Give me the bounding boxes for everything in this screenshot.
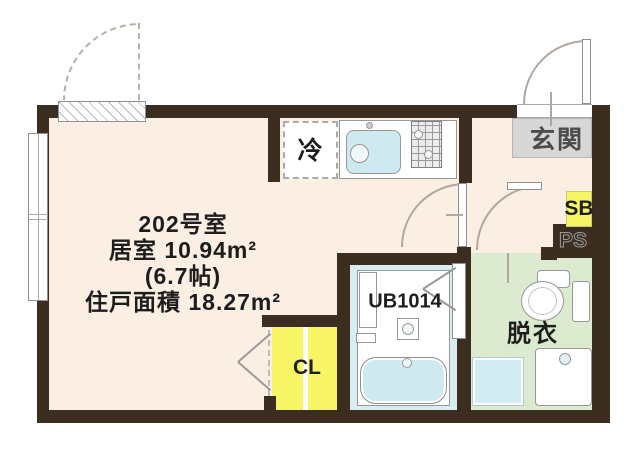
tatami-size: (6.7帖): [85, 263, 281, 289]
front-door-arc: [523, 40, 587, 104]
window-leaf-dashed: [138, 23, 140, 100]
wall-right: [592, 105, 610, 423]
top-window: [58, 101, 146, 122]
floor-plan: 202号室 居室 10.94m² (6.7帖) 住戸面積 18.27m² 冷 玄…: [0, 0, 640, 451]
bath-faucet-unit: [356, 333, 376, 343]
refrigerator-label: 冷: [297, 131, 322, 167]
wall-kitchen-nook: [268, 118, 280, 182]
faucet: [366, 122, 373, 129]
room-door-tick: [446, 214, 463, 216]
wall-bottom: [37, 410, 610, 423]
unit-bath-label: UB1014: [368, 291, 441, 314]
room-number: 202号室: [85, 211, 281, 237]
room-info-block: 202号室 居室 10.94m² (6.7帖) 住戸面積 18.27m²: [85, 211, 281, 315]
left-window-divider: [28, 214, 48, 215]
wall-top-main: [144, 105, 517, 118]
laundry-sink: [472, 357, 524, 406]
dressing-door-leaf: [507, 182, 542, 190]
wall-closet-bath: [337, 253, 350, 410]
wall-closet-top: [262, 315, 350, 327]
wall-closet-post: [264, 396, 276, 410]
entrance-label: 玄関: [530, 120, 584, 156]
toilet-side-unit: [572, 281, 590, 322]
window-swing-arc: [63, 23, 140, 100]
left-window-mullion: [38, 134, 39, 300]
left-window-divider2: [28, 219, 48, 220]
stove-burner-1: [414, 130, 423, 139]
front-door-sill: [517, 104, 592, 118]
shoe-box-label: SB: [564, 197, 593, 221]
bath-washbasin-bowl: [402, 323, 414, 335]
toilet-seat-line: [528, 287, 557, 315]
wall-bath-top: [337, 253, 471, 265]
unit-area: 住戸面積 18.27m²: [85, 289, 281, 315]
washing-pan-drain: [559, 353, 571, 365]
pipe-space-label: PS: [559, 229, 587, 253]
front-door-leaf: [582, 39, 591, 104]
dressing-room-label: 脱衣: [507, 314, 559, 349]
bath-door-leaf: [452, 263, 466, 339]
gas-stove: [411, 121, 442, 168]
sink-basin: [350, 144, 369, 163]
closet-label: CL: [293, 356, 321, 380]
bathtub-drain: [402, 358, 412, 368]
living-area: 居室 10.94m²: [85, 237, 281, 263]
stove-burner-2: [424, 150, 433, 159]
dressing-door-tick: [507, 253, 509, 283]
wall-kitchen-hall: [459, 118, 472, 183]
